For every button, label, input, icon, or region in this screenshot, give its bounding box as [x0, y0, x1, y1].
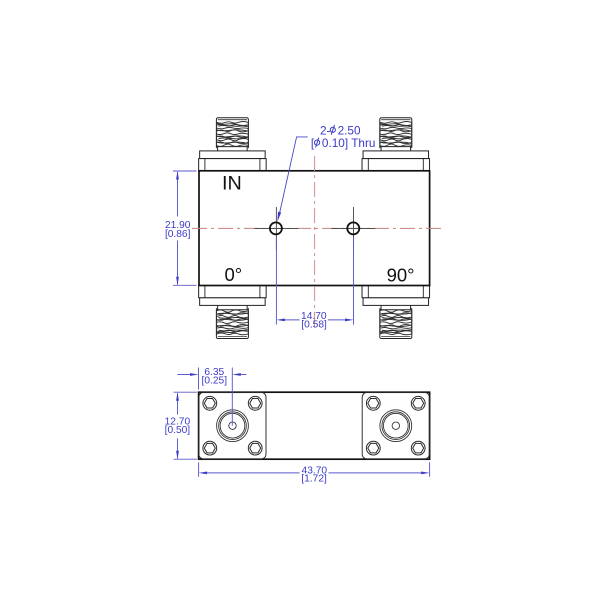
svg-text:[1.72]: [1.72] [301, 474, 327, 485]
svg-text:90°: 90° [387, 264, 415, 285]
svg-text:[0.86]: [0.86] [165, 229, 191, 240]
svg-text:[0.25]: [0.25] [202, 376, 228, 387]
svg-text:0.10] Thru: 0.10] Thru [322, 136, 376, 150]
svg-text:[0.50]: [0.50] [165, 425, 191, 436]
svg-text:IN: IN [222, 173, 242, 195]
svg-text:[0.58]: [0.58] [301, 320, 327, 331]
svg-text:0°: 0° [225, 264, 243, 285]
